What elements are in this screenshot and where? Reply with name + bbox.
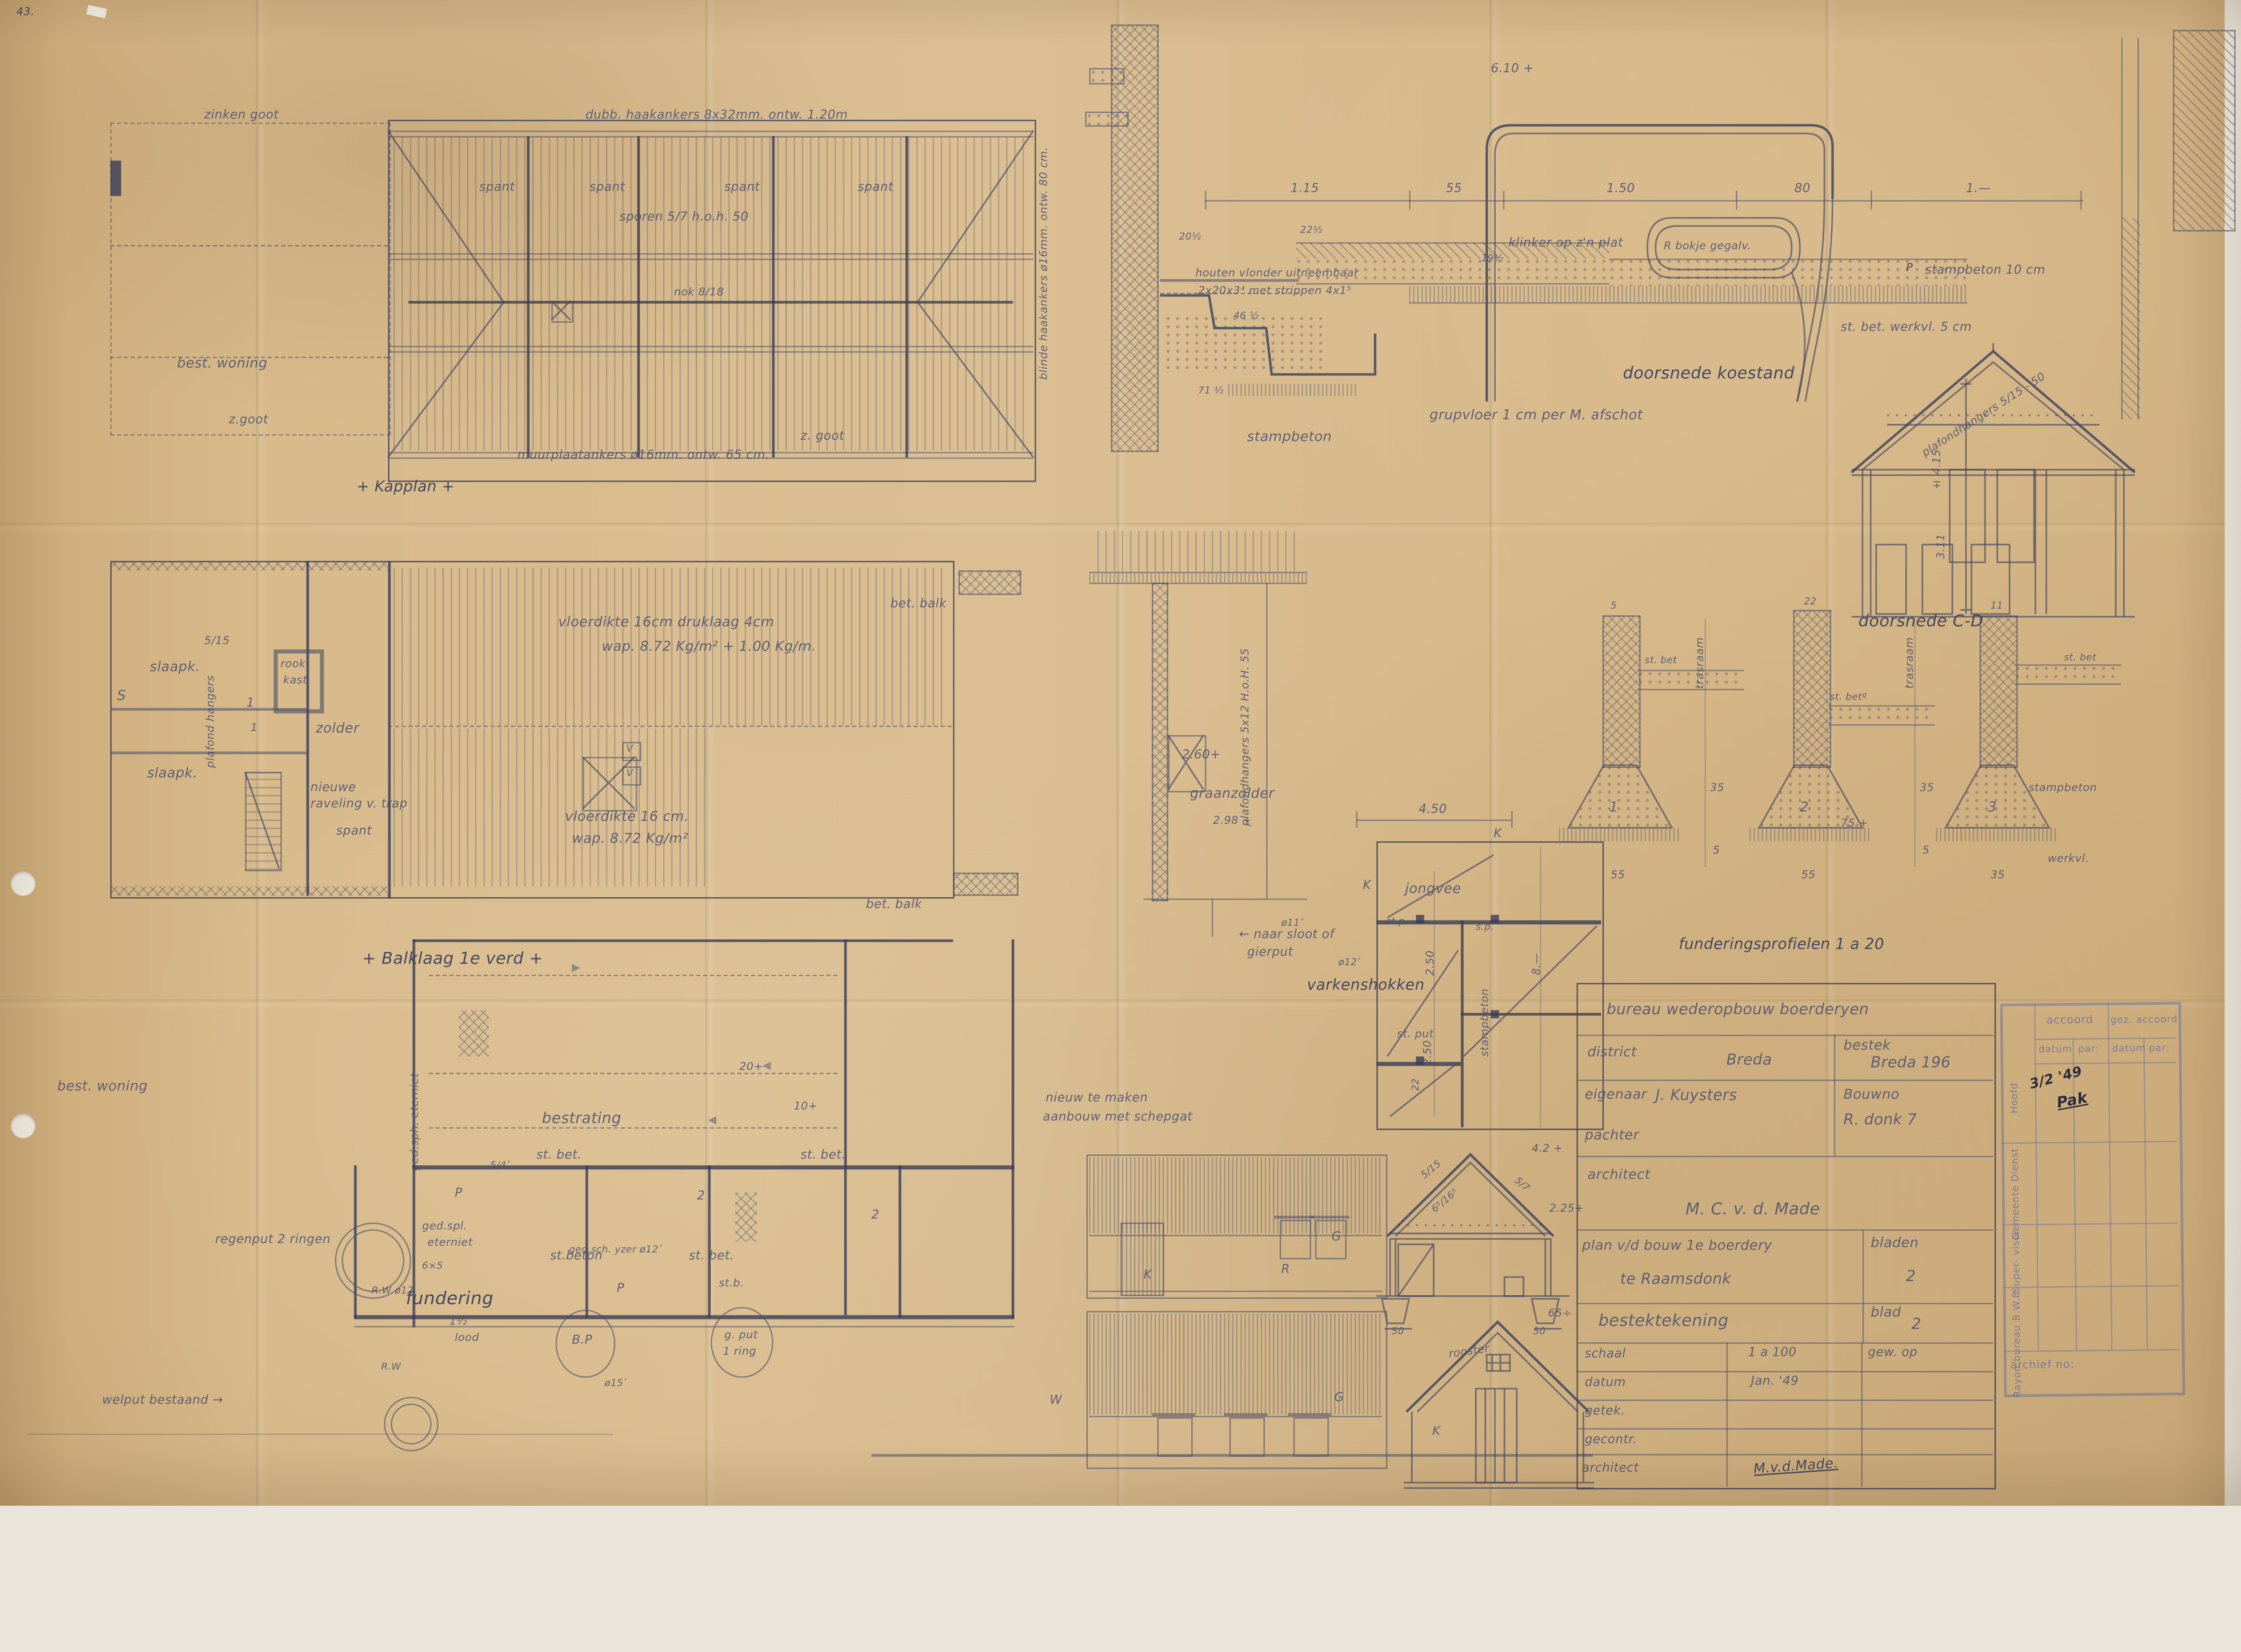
stamp-header: accoord (2046, 1014, 2094, 1027)
stamp-row-label: Hoofd (2009, 1082, 2020, 1113)
stamp-header: gez. accoord (2111, 1014, 2178, 1026)
stamp-subheader: datum (2038, 1044, 2072, 1055)
stamp-row-label: Super- visor (2011, 1229, 2022, 1293)
stamp-row-label: Gemeente Dienst (2010, 1148, 2022, 1240)
stamp-subheader: par: (2149, 1043, 2170, 1054)
approval-stamp: accoord gez. accoord datum par: datum pa… (0, 0, 2241, 1506)
blueprint-sheet: 43. zinken goot dubb. haakankers 8x32mm.… (0, 0, 2241, 1506)
stamp-archief: archief no: (2011, 1358, 2075, 1371)
stamp-subheader: par: (2078, 1043, 2099, 1055)
stamp-frame (2000, 1002, 2185, 1397)
stamp-subheader: datum (2112, 1043, 2146, 1054)
stamp-row-label: Rayon bureau B.W.B (2011, 1291, 2023, 1397)
scaled-viewport: 43. zinken goot dubb. haakankers 8x32mm.… (0, 0, 2241, 1506)
